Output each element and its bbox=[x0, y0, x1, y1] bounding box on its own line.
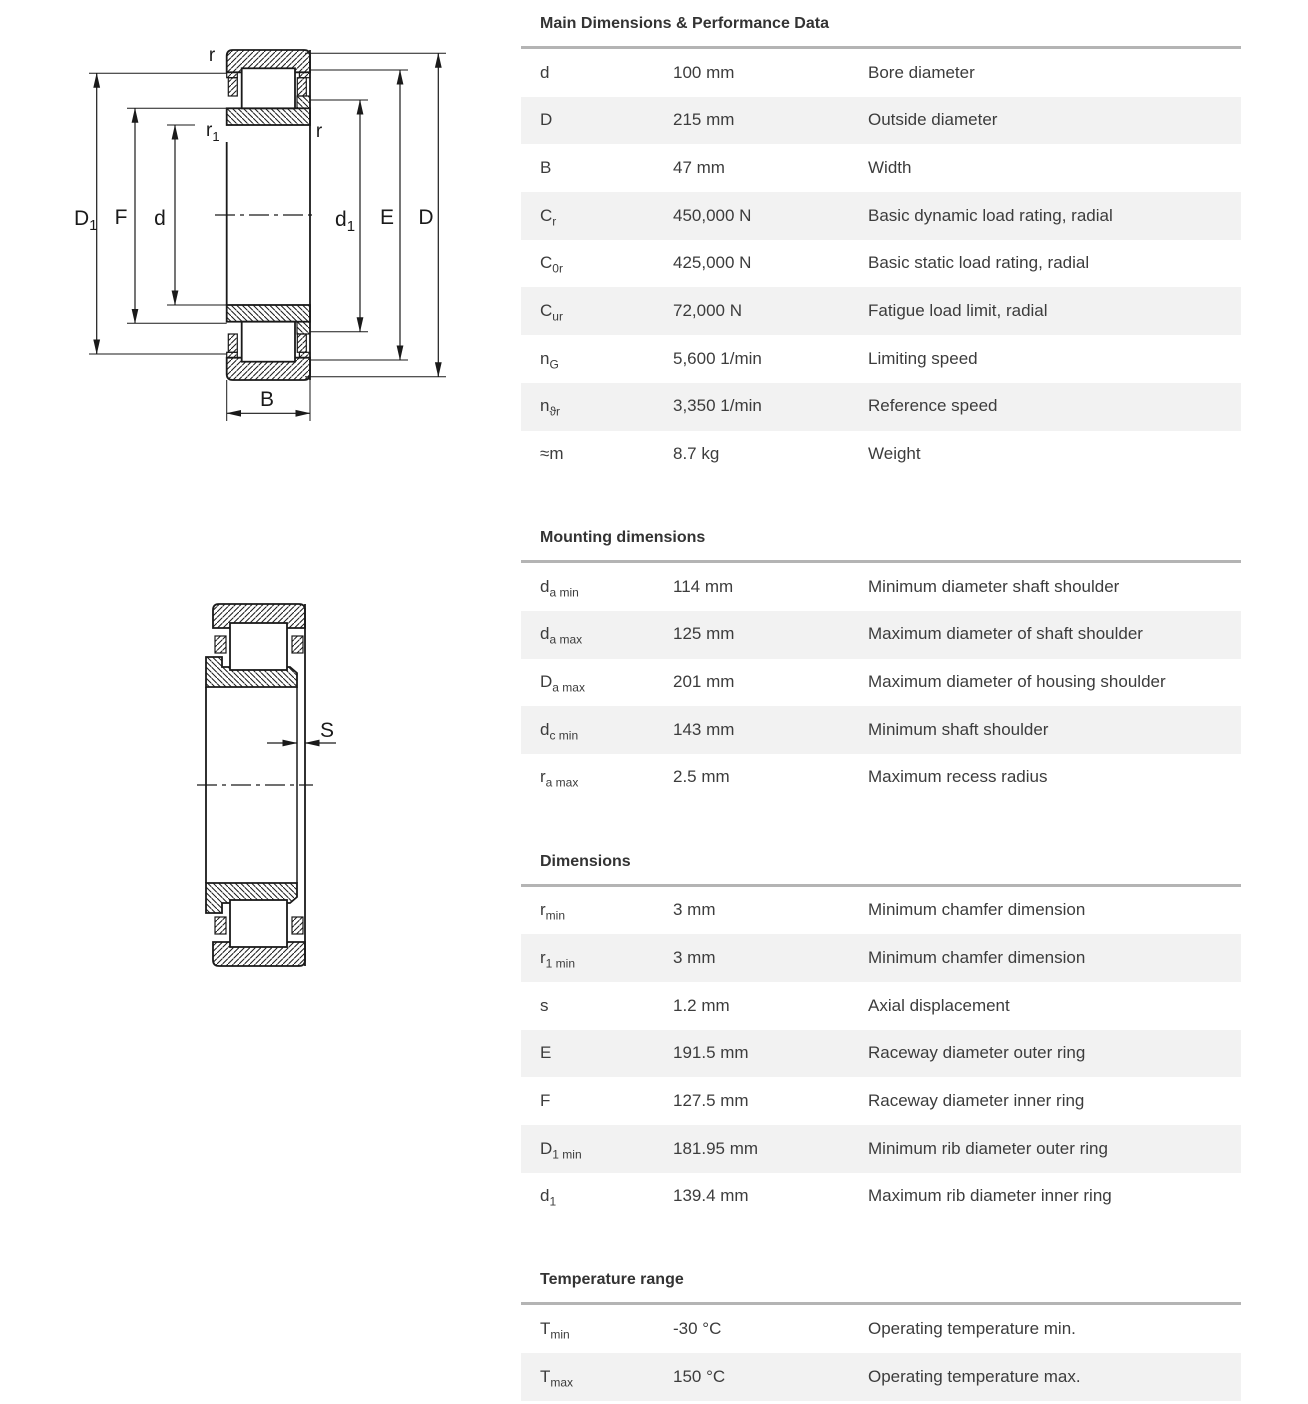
table-row: s1.2 mmAxial displacement bbox=[521, 982, 1241, 1030]
value-cell: 1.2 mm bbox=[673, 997, 868, 1016]
symbol-cell: Cur bbox=[540, 302, 673, 321]
roller-section bbox=[242, 322, 295, 362]
symbol-cell: da max bbox=[540, 625, 673, 644]
cage-section bbox=[215, 636, 226, 653]
value-cell: 127.5 mm bbox=[673, 1092, 868, 1111]
dim-label-r-top: r bbox=[209, 45, 216, 66]
table-row: Tmin-30 °COperating temperature min. bbox=[521, 1305, 1241, 1353]
value-cell: 47 mm bbox=[673, 159, 868, 178]
value-cell: 72,000 N bbox=[673, 302, 868, 321]
spec-table: d100 mmBore diameterD215 mmOutside diame… bbox=[521, 46, 1241, 478]
value-cell: 139.4 mm bbox=[673, 1187, 868, 1206]
section-title: Mounting dimensions bbox=[521, 528, 1241, 547]
symbol-cell: D bbox=[540, 111, 673, 130]
symbol-cell: Da max bbox=[540, 673, 673, 692]
value-cell: 181.95 mm bbox=[673, 1140, 868, 1159]
value-cell: 100 mm bbox=[673, 64, 868, 83]
symbol-cell: B bbox=[540, 159, 673, 178]
description-cell: Basic static load rating, radial bbox=[868, 254, 1241, 273]
spec-table: Tmin-30 °COperating temperature min.Tmax… bbox=[521, 1302, 1241, 1400]
symbol-cell: nϑr bbox=[540, 397, 673, 416]
description-cell: Basic dynamic load rating, radial bbox=[868, 207, 1241, 226]
table-row: nG5,600 1/minLimiting speed bbox=[521, 335, 1241, 383]
section-mounting-dimensions: Mounting dimensions da min114 mmMinimum … bbox=[521, 528, 1241, 801]
table-row: r1 min3 mmMinimum chamfer dimension bbox=[521, 934, 1241, 982]
cage-section bbox=[228, 78, 237, 96]
dim-label-D1: D1 bbox=[74, 207, 98, 234]
value-cell: 125 mm bbox=[673, 625, 868, 644]
section-main-dimensions: Main Dimensions & Performance Data d100 … bbox=[521, 14, 1241, 478]
symbol-cell: Tmin bbox=[540, 1320, 673, 1339]
table-row: Da max201 mmMaximum diameter of housing … bbox=[521, 659, 1241, 707]
cage-section bbox=[297, 78, 306, 96]
symbol-cell: d bbox=[540, 64, 673, 83]
bearing-cross-section-diagram: r r1 r D1 F d d1 E D B bbox=[55, 30, 505, 445]
description-cell: Limiting speed bbox=[868, 350, 1241, 369]
description-cell: Maximum rib diameter inner ring bbox=[868, 1187, 1241, 1206]
description-cell: Weight bbox=[868, 445, 1241, 464]
section-dimensions: Dimensions rmin3 mmMinimum chamfer dimen… bbox=[521, 852, 1241, 1221]
symbol-cell: D1 min bbox=[540, 1140, 673, 1159]
description-cell: Operating temperature min. bbox=[868, 1320, 1241, 1339]
value-cell: 191.5 mm bbox=[673, 1044, 868, 1063]
description-cell: Minimum diameter shaft shoulder bbox=[868, 578, 1241, 597]
value-cell: 2.5 mm bbox=[673, 768, 868, 787]
cage-section bbox=[292, 917, 303, 934]
symbol-cell: C0r bbox=[540, 254, 673, 273]
dim-label-D: D bbox=[418, 206, 433, 229]
section-title: Main Dimensions & Performance Data bbox=[521, 14, 1241, 33]
table-row: E191.5 mmRaceway diameter outer ring bbox=[521, 1030, 1241, 1078]
description-cell: Maximum diameter of shaft shoulder bbox=[868, 625, 1241, 644]
symbol-cell: ra max bbox=[540, 768, 673, 787]
description-cell: Fatigue load limit, radial bbox=[868, 302, 1241, 321]
description-cell: Raceway diameter outer ring bbox=[868, 1044, 1241, 1063]
description-cell: Outside diameter bbox=[868, 111, 1241, 130]
value-cell: 3 mm bbox=[673, 901, 868, 920]
symbol-cell: Tmax bbox=[540, 1368, 673, 1387]
bearing-datasheet-page: r r1 r D1 F d d1 E D B bbox=[0, 0, 1308, 1404]
dim-label-F: F bbox=[115, 206, 128, 229]
table-row: Tmax150 °COperating temperature max. bbox=[521, 1353, 1241, 1401]
table-row: ≈m8.7 kgWeight bbox=[521, 431, 1241, 479]
value-cell: 3 mm bbox=[673, 949, 868, 968]
description-cell: Raceway diameter inner ring bbox=[868, 1092, 1241, 1111]
roller-section bbox=[230, 623, 287, 670]
value-cell: 450,000 N bbox=[673, 207, 868, 226]
dim-label-r-right: r bbox=[316, 121, 323, 142]
table-row: dc min143 mmMinimum shaft shoulder bbox=[521, 706, 1241, 754]
spec-table: da min114 mmMinimum diameter shaft shoul… bbox=[521, 560, 1241, 801]
symbol-cell: E bbox=[540, 1044, 673, 1063]
cage-section bbox=[292, 636, 303, 653]
roller-section bbox=[242, 68, 295, 108]
description-cell: Minimum rib diameter outer ring bbox=[868, 1140, 1241, 1159]
symbol-cell: dc min bbox=[540, 721, 673, 740]
cage-section bbox=[297, 334, 306, 352]
symbol-cell: rmin bbox=[540, 901, 673, 920]
value-cell: 425,000 N bbox=[673, 254, 868, 273]
dim-label-r1: r1 bbox=[206, 120, 220, 144]
value-cell: -30 °C bbox=[673, 1320, 868, 1339]
roller-section bbox=[230, 900, 287, 947]
axial-displacement-diagram: S bbox=[195, 590, 355, 985]
description-cell: Maximum recess radius bbox=[868, 768, 1241, 787]
description-cell: Bore diameter bbox=[868, 64, 1241, 83]
dim-label-E: E bbox=[380, 206, 394, 229]
section-title: Dimensions bbox=[521, 852, 1241, 871]
table-row: da min114 mmMinimum diameter shaft shoul… bbox=[521, 563, 1241, 611]
symbol-cell: nG bbox=[540, 350, 673, 369]
description-cell: Width bbox=[868, 159, 1241, 178]
section-temperature-range: Temperature range Tmin-30 °COperating te… bbox=[521, 1270, 1241, 1400]
symbol-cell: F bbox=[540, 1092, 673, 1111]
value-cell: 8.7 kg bbox=[673, 445, 868, 464]
table-row: da max125 mmMaximum diameter of shaft sh… bbox=[521, 611, 1241, 659]
symbol-cell: s bbox=[540, 997, 673, 1016]
table-row: ra max2.5 mmMaximum recess radius bbox=[521, 754, 1241, 802]
table-row: B47 mmWidth bbox=[521, 144, 1241, 192]
description-cell: Minimum chamfer dimension bbox=[868, 901, 1241, 920]
section-title: Temperature range bbox=[521, 1270, 1241, 1289]
description-cell: Reference speed bbox=[868, 397, 1241, 416]
table-row: d100 mmBore diameter bbox=[521, 49, 1241, 97]
description-cell: Minimum shaft shoulder bbox=[868, 721, 1241, 740]
cage-section bbox=[228, 334, 237, 352]
table-row: Cur72,000 NFatigue load limit, radial bbox=[521, 287, 1241, 335]
symbol-cell: da min bbox=[540, 578, 673, 597]
dim-label-d: d bbox=[154, 207, 166, 230]
value-cell: 5,600 1/min bbox=[673, 350, 868, 369]
table-row: F127.5 mmRaceway diameter inner ring bbox=[521, 1077, 1241, 1125]
symbol-cell: d1 bbox=[540, 1187, 673, 1206]
value-cell: 143 mm bbox=[673, 721, 868, 740]
table-row: Cr450,000 NBasic dynamic load rating, ra… bbox=[521, 192, 1241, 240]
symbol-cell: Cr bbox=[540, 207, 673, 226]
spec-tables: Main Dimensions & Performance Data d100 … bbox=[521, 0, 1241, 1401]
dim-label-B: B bbox=[260, 388, 274, 411]
description-cell: Minimum chamfer dimension bbox=[868, 949, 1241, 968]
table-row: rmin3 mmMinimum chamfer dimension bbox=[521, 887, 1241, 935]
table-row: D1 min181.95 mmMinimum rib diameter oute… bbox=[521, 1125, 1241, 1173]
dim-label-d1: d1 bbox=[335, 208, 355, 235]
value-cell: 201 mm bbox=[673, 673, 868, 692]
cage-section bbox=[215, 917, 226, 934]
description-cell: Maximum diameter of housing shoulder bbox=[868, 673, 1241, 692]
table-row: C0r425,000 NBasic static load rating, ra… bbox=[521, 240, 1241, 288]
value-cell: 114 mm bbox=[673, 578, 868, 597]
spec-table: rmin3 mmMinimum chamfer dimensionr1 min3… bbox=[521, 884, 1241, 1221]
table-row: d1139.4 mmMaximum rib diameter inner rin… bbox=[521, 1173, 1241, 1221]
dim-label-S: S bbox=[320, 719, 334, 742]
symbol-cell: ≈m bbox=[540, 445, 673, 464]
description-cell: Operating temperature max. bbox=[868, 1368, 1241, 1387]
description-cell: Axial displacement bbox=[868, 997, 1241, 1016]
table-row: nϑr3,350 1/minReference speed bbox=[521, 383, 1241, 431]
value-cell: 150 °C bbox=[673, 1368, 868, 1387]
value-cell: 3,350 1/min bbox=[673, 397, 868, 416]
table-row: D215 mmOutside diameter bbox=[521, 97, 1241, 145]
symbol-cell: r1 min bbox=[540, 949, 673, 968]
value-cell: 215 mm bbox=[673, 111, 868, 130]
